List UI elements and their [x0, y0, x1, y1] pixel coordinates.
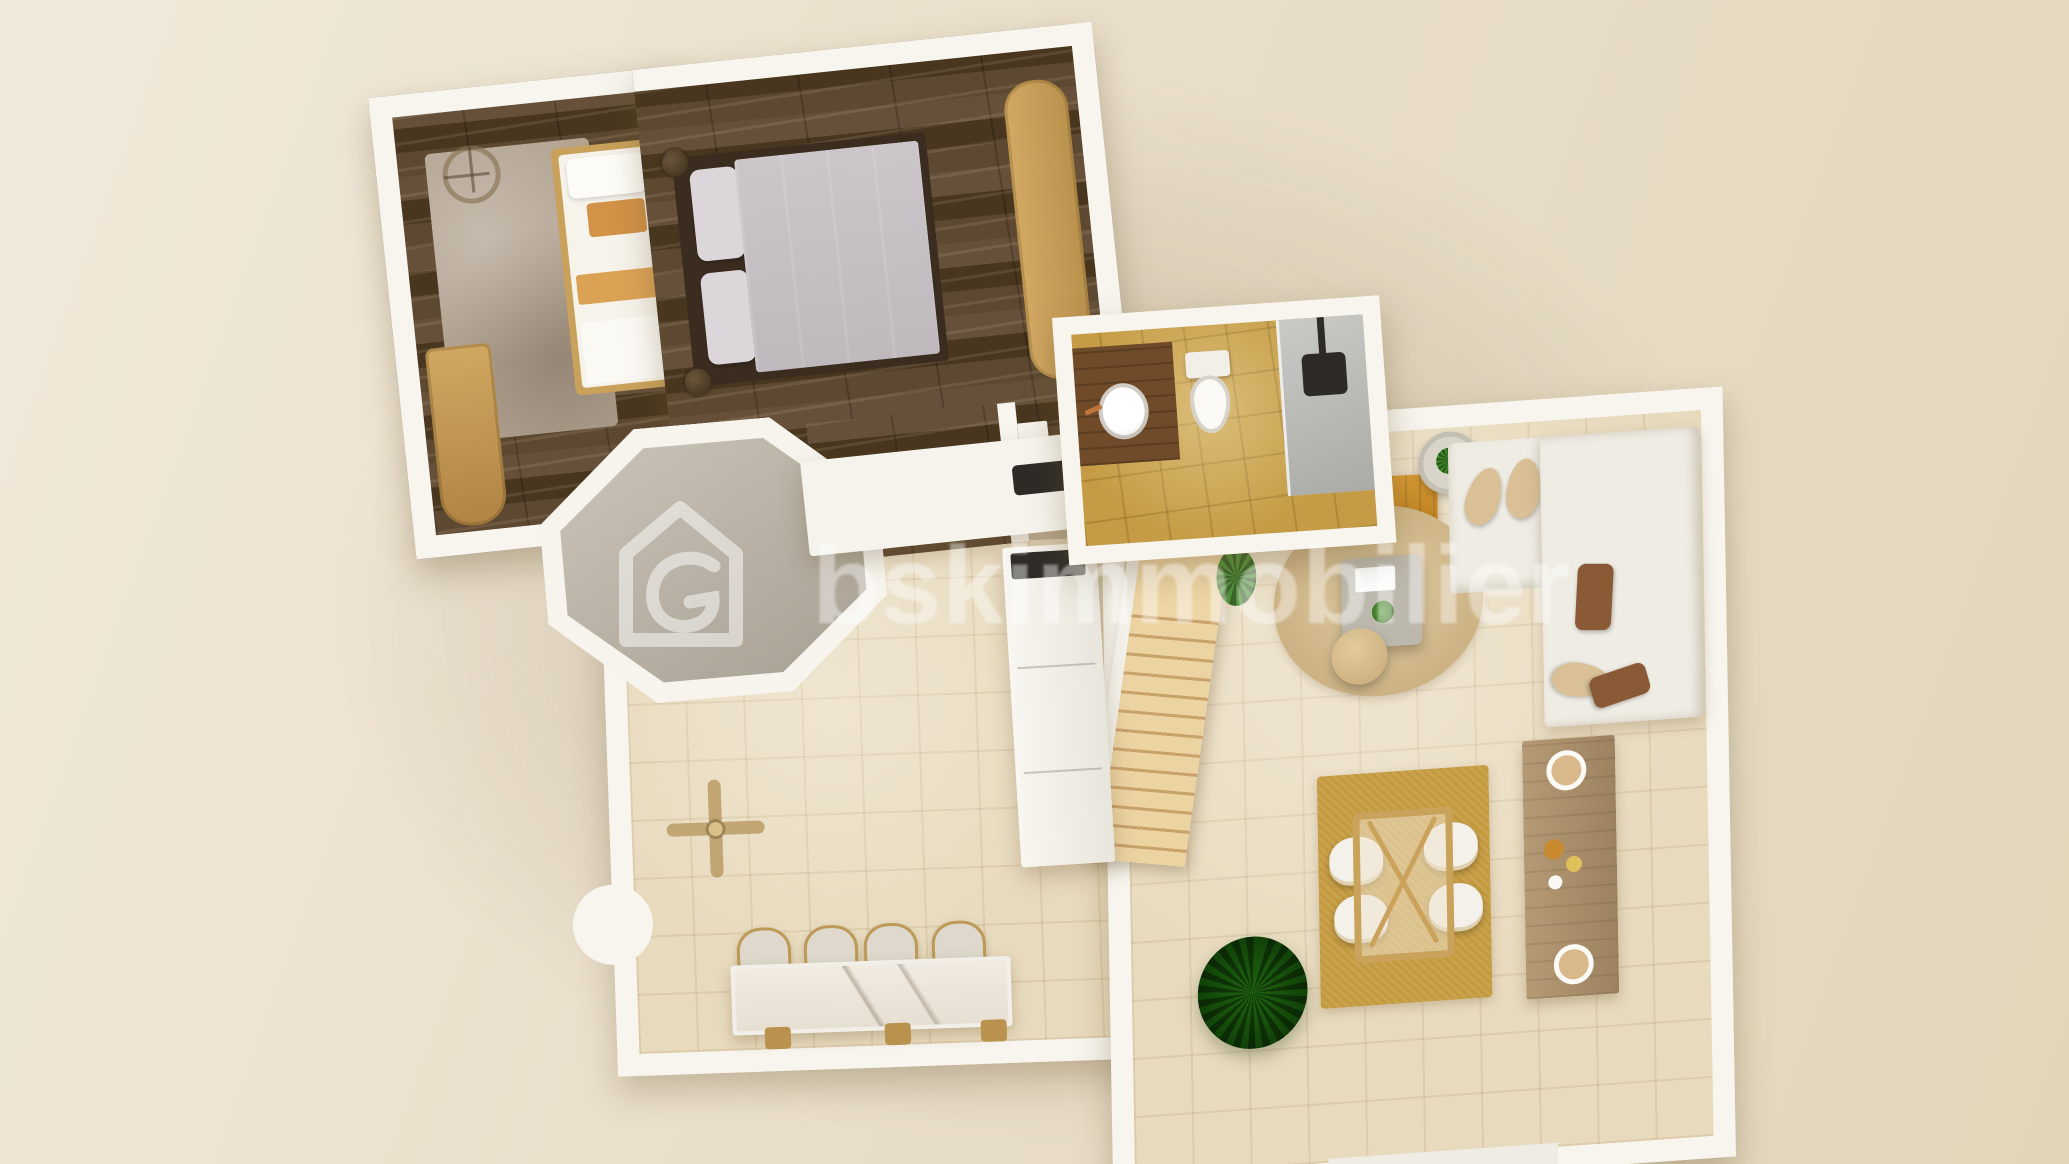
island-leg — [980, 1019, 1007, 1042]
sofa-cushion — [1503, 457, 1544, 519]
table-cross-leg — [1367, 820, 1440, 944]
showerhead-icon — [1301, 352, 1348, 397]
double-bed-duvet — [734, 140, 940, 372]
sofa-cushion — [1459, 464, 1508, 529]
fan-blade — [718, 820, 764, 835]
fan-blade — [707, 779, 722, 825]
floor-plan-render: bskimmobilier — [0, 0, 2069, 1164]
round-tray — [1553, 943, 1594, 986]
marble-countertop — [735, 960, 1009, 1031]
ceiling-fan-icon — [666, 779, 765, 878]
watermark-text: bskimmobilier — [812, 522, 1571, 649]
house-g-logo-icon — [600, 492, 760, 660]
island-leg — [885, 1022, 912, 1045]
walk-in-shower — [1276, 314, 1375, 496]
bed-post-knob — [684, 368, 713, 397]
kitchen-island — [730, 956, 1012, 1036]
gold-decor — [1566, 855, 1582, 872]
door-threshold — [1328, 1143, 1558, 1164]
toilet — [1185, 350, 1231, 379]
sofa-throw — [1575, 564, 1614, 630]
dining-table — [1352, 806, 1454, 963]
island-leg — [765, 1027, 792, 1050]
potted-plant — [1197, 933, 1309, 1053]
cabinet-seam — [1024, 767, 1102, 774]
single-bed-pillow — [566, 152, 648, 200]
cabinet-seam — [1017, 663, 1095, 670]
single-bed-orange-throw — [586, 198, 647, 238]
double-bed — [671, 132, 949, 387]
bed-post-knob — [661, 149, 690, 178]
shower-arm — [1317, 317, 1327, 355]
fan-blade — [666, 822, 712, 837]
gold-decor — [1544, 839, 1564, 860]
sideboard — [1522, 735, 1619, 1000]
white-decor — [1548, 875, 1562, 890]
fan-blade — [709, 831, 724, 877]
round-tray — [1546, 749, 1587, 792]
